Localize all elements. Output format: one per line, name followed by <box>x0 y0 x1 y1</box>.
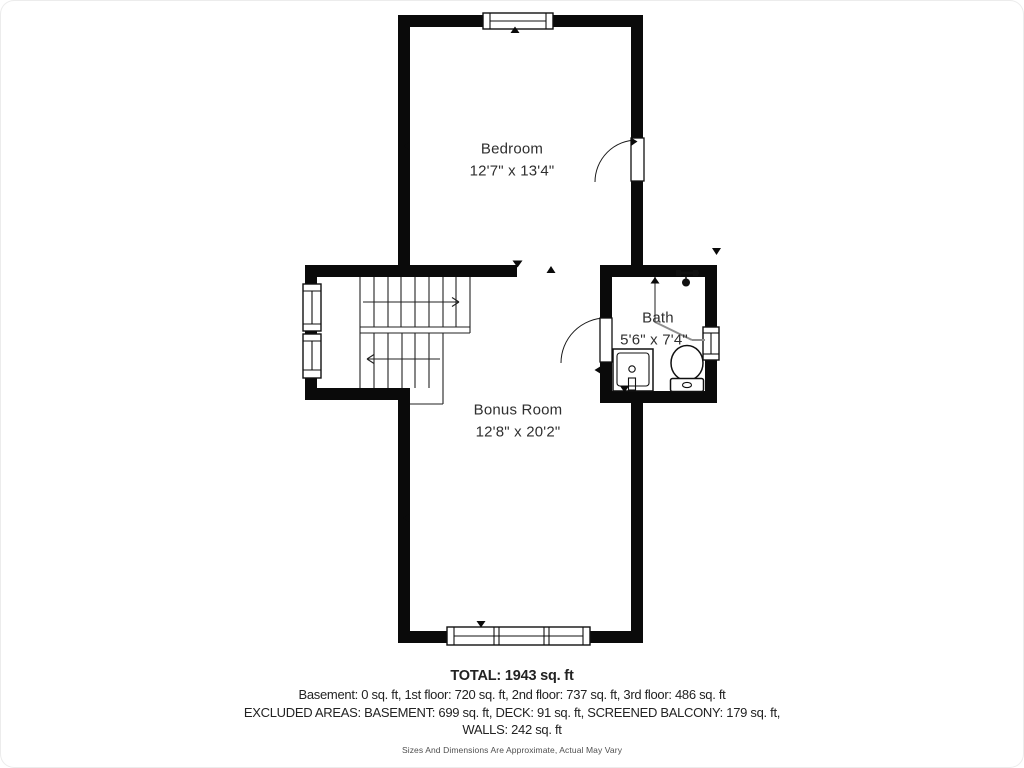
bath-label: Bath <box>642 310 674 327</box>
walls-area-text: WALLS: 242 sq. ft <box>0 721 1024 739</box>
marker-bath-left-wall <box>595 366 602 374</box>
marker-bath-top-wall <box>651 277 660 284</box>
bonus-room-dimensions: 12'8" x 20'2" <box>476 424 561 441</box>
floorplan-page: Bedroom 12'7" x 13'4" Bath 5'6" x 7'4" B… <box>0 0 1024 768</box>
bedroom-door <box>595 138 644 182</box>
floor-areas-text: Basement: 0 sq. ft, 1st floor: 720 sq. f… <box>0 686 1024 704</box>
floor-plan-drawing <box>0 0 1024 768</box>
shower-icon <box>655 270 705 340</box>
bath-window <box>703 327 719 360</box>
wall-bedroom-right-lower <box>631 181 643 277</box>
shower-head-icon <box>676 270 699 287</box>
bonus-room-label: Bonus Room <box>474 402 563 419</box>
wall-bath-bottom <box>600 391 717 403</box>
wall-stair-bottom <box>305 388 403 400</box>
excluded-areas-text: EXCLUDED AREAS: BASEMENT: 699 sq. ft, DE… <box>0 704 1024 722</box>
wall-bedroom-left <box>398 15 410 265</box>
wall-divider <box>305 265 517 277</box>
marker-opening <box>547 266 556 273</box>
wall-bonus-right <box>631 403 643 643</box>
total-area-text: TOTAL: 1943 sq. ft <box>0 668 1024 686</box>
bedroom-window <box>483 13 553 29</box>
bath-dimensions: 5'6" x 7'4" <box>620 332 688 349</box>
wall-bath-top <box>600 265 717 277</box>
disclaimer-text: Sizes And Dimensions Are Approximate, Ac… <box>0 745 1024 755</box>
sink-icon <box>613 349 653 391</box>
bedroom-label: Bedroom <box>481 141 543 158</box>
toilet-icon <box>671 346 704 392</box>
staircase <box>360 277 470 404</box>
walls <box>305 15 717 643</box>
marker-bath-corner <box>712 248 721 255</box>
stair-window-lower <box>303 334 321 378</box>
area-summary: TOTAL: 1943 sq. ft Basement: 0 sq. ft, 1… <box>0 668 1024 755</box>
bath-door <box>561 318 612 363</box>
wall-bath-left-lower <box>600 362 612 403</box>
wall-bath-left-upper <box>600 265 612 318</box>
stair-window-upper <box>303 284 321 331</box>
bedroom-dimensions: 12'7" x 13'4" <box>470 163 555 180</box>
wall-bedroom-right-upper <box>631 15 643 138</box>
stair-arrow-up <box>363 298 459 307</box>
bonus-room-window <box>447 627 590 645</box>
